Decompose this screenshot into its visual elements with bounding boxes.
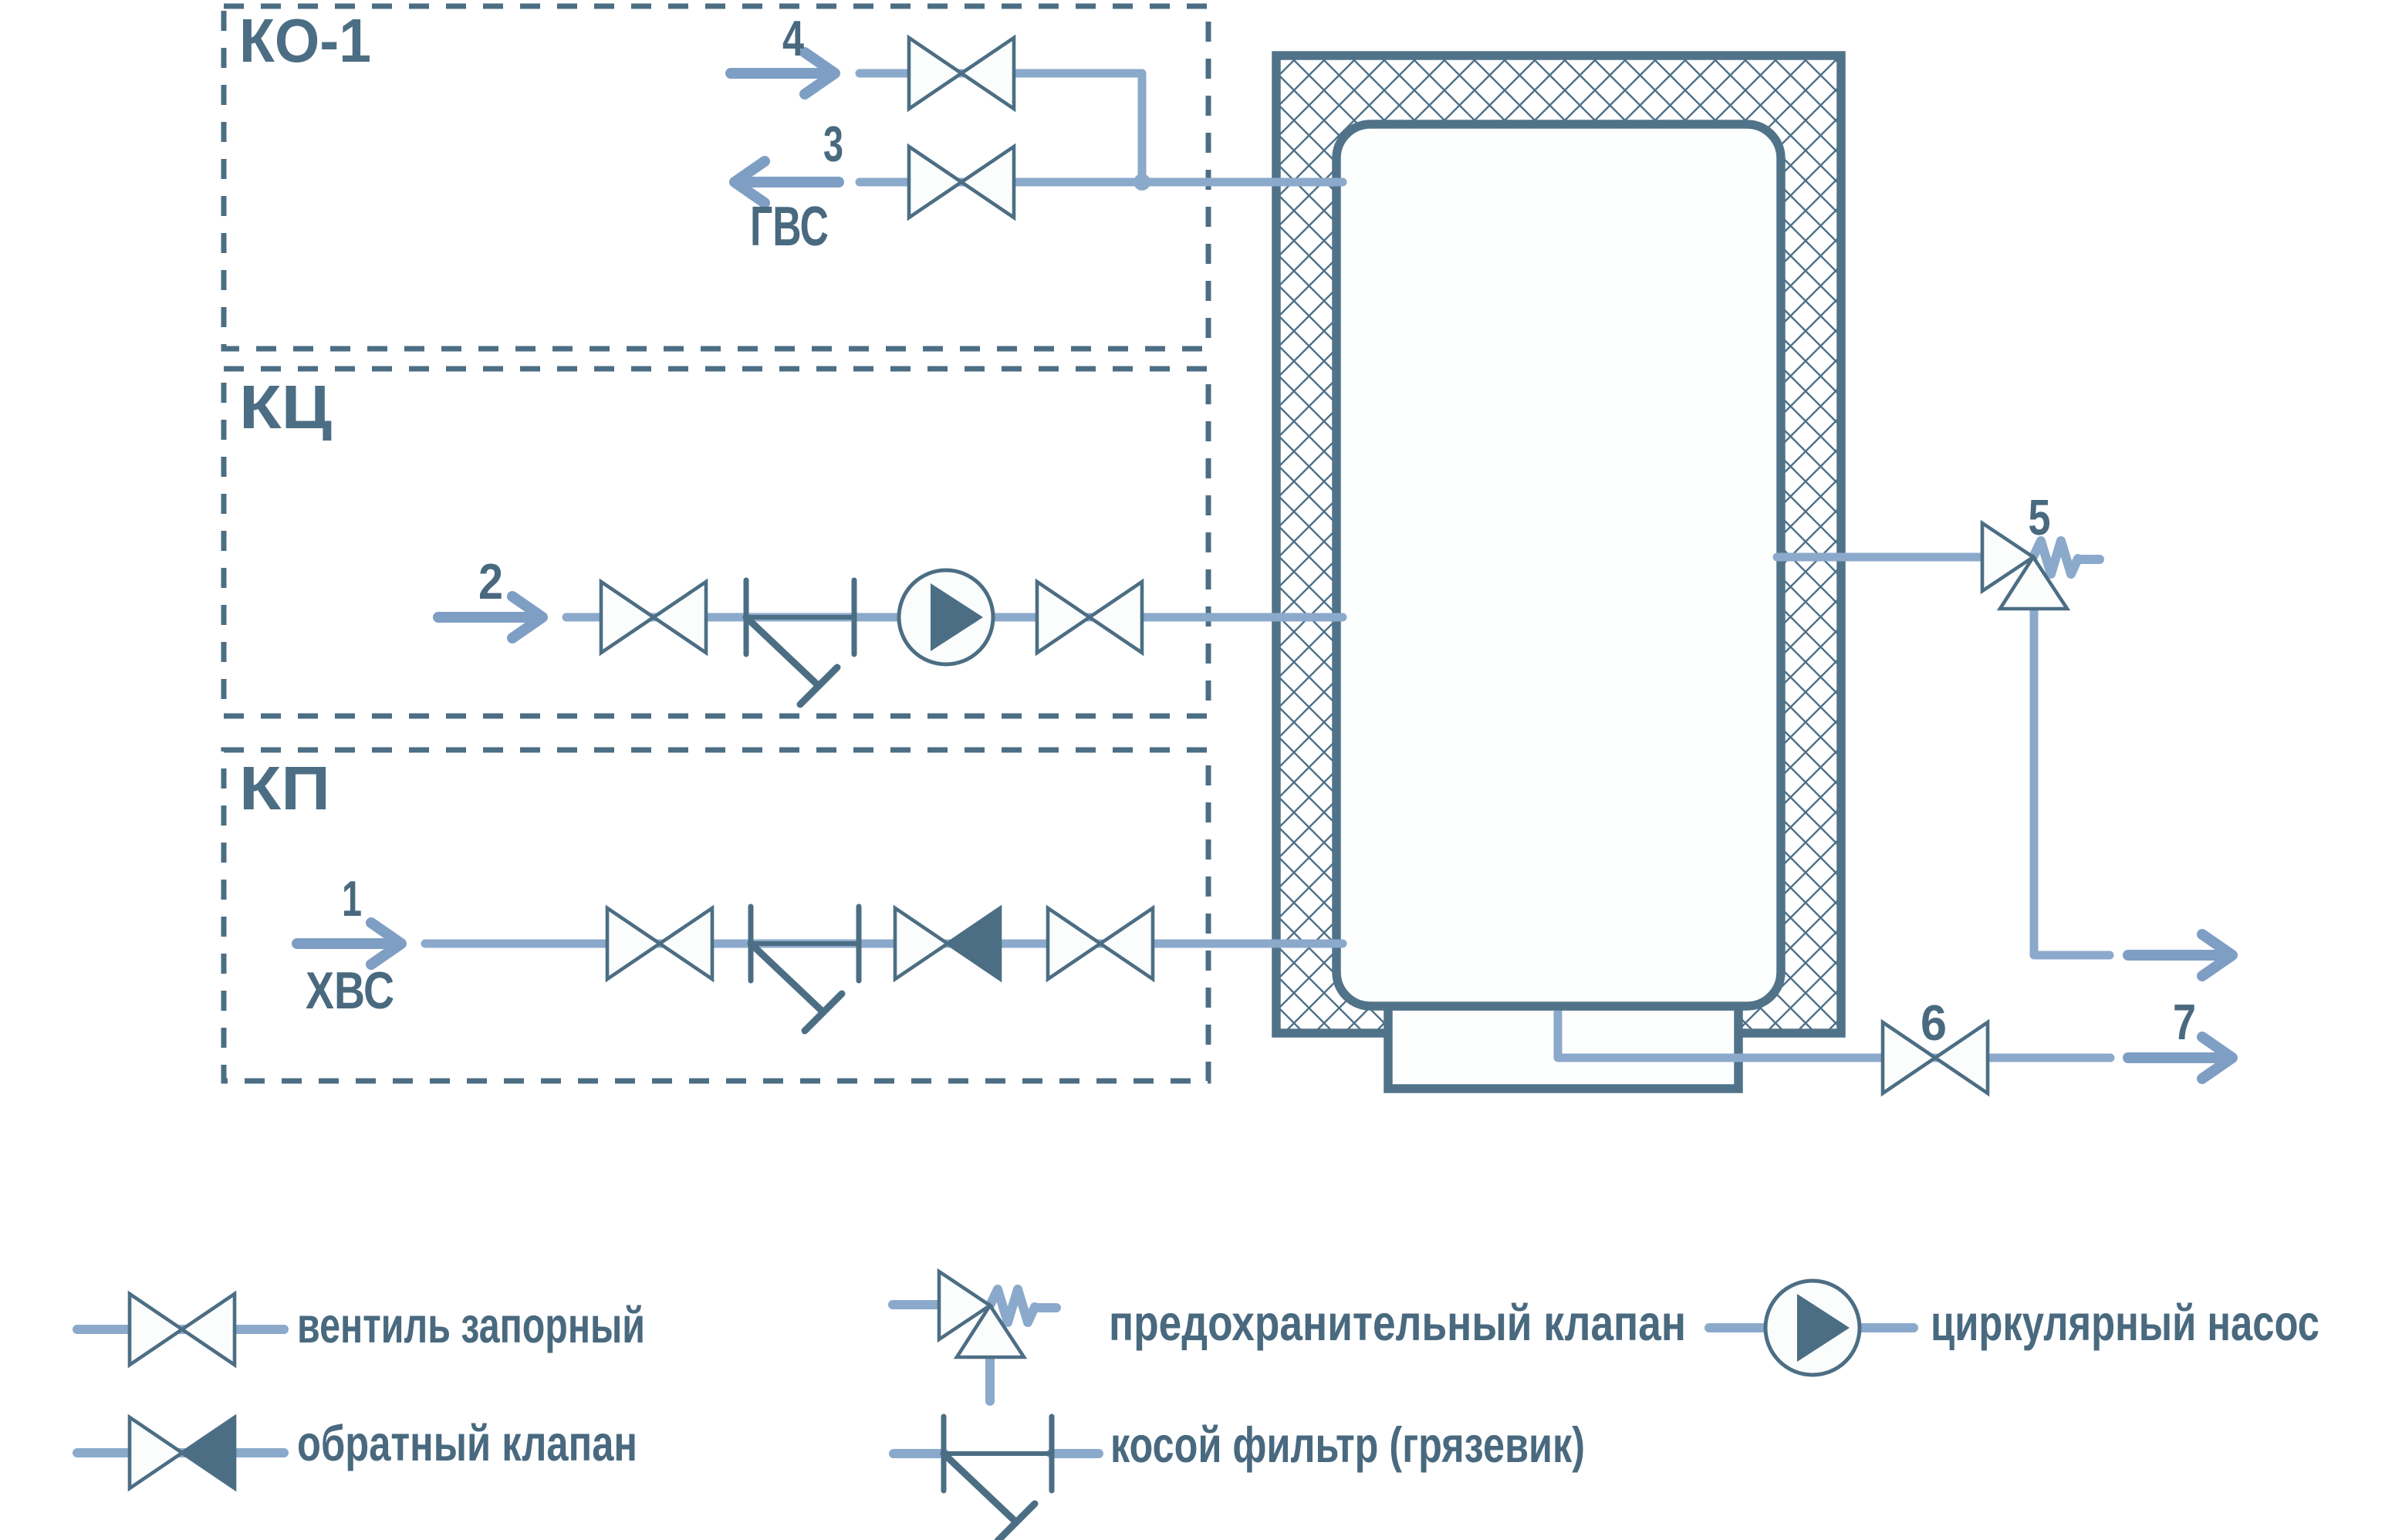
svg-text:6: 6 [1921,995,1947,1051]
svg-text:ГВС: ГВС [750,196,829,258]
svg-text:обратный клапан: обратный клапан [297,1415,637,1471]
svg-text:косой фильтр (грязевик): косой фильтр (грязевик) [1110,1417,1585,1473]
svg-text:КП: КП [239,754,330,822]
svg-text:циркулярный насос: циркулярный насос [1931,1295,2319,1351]
svg-text:предохранительный клапан: предохранительный клапан [1109,1295,1686,1351]
svg-text:2: 2 [478,553,503,610]
svg-text:1: 1 [342,870,362,927]
svg-text:5: 5 [2029,489,2051,545]
svg-text:вентиль запорный: вентиль запорный [297,1297,645,1353]
svg-text:7: 7 [2173,994,2196,1050]
svg-text:КЦ: КЦ [239,373,332,441]
svg-text:3: 3 [823,116,843,172]
svg-text:ХВС: ХВС [306,961,394,1020]
svg-text:КО-1: КО-1 [239,6,371,75]
svg-text:4: 4 [782,10,804,66]
